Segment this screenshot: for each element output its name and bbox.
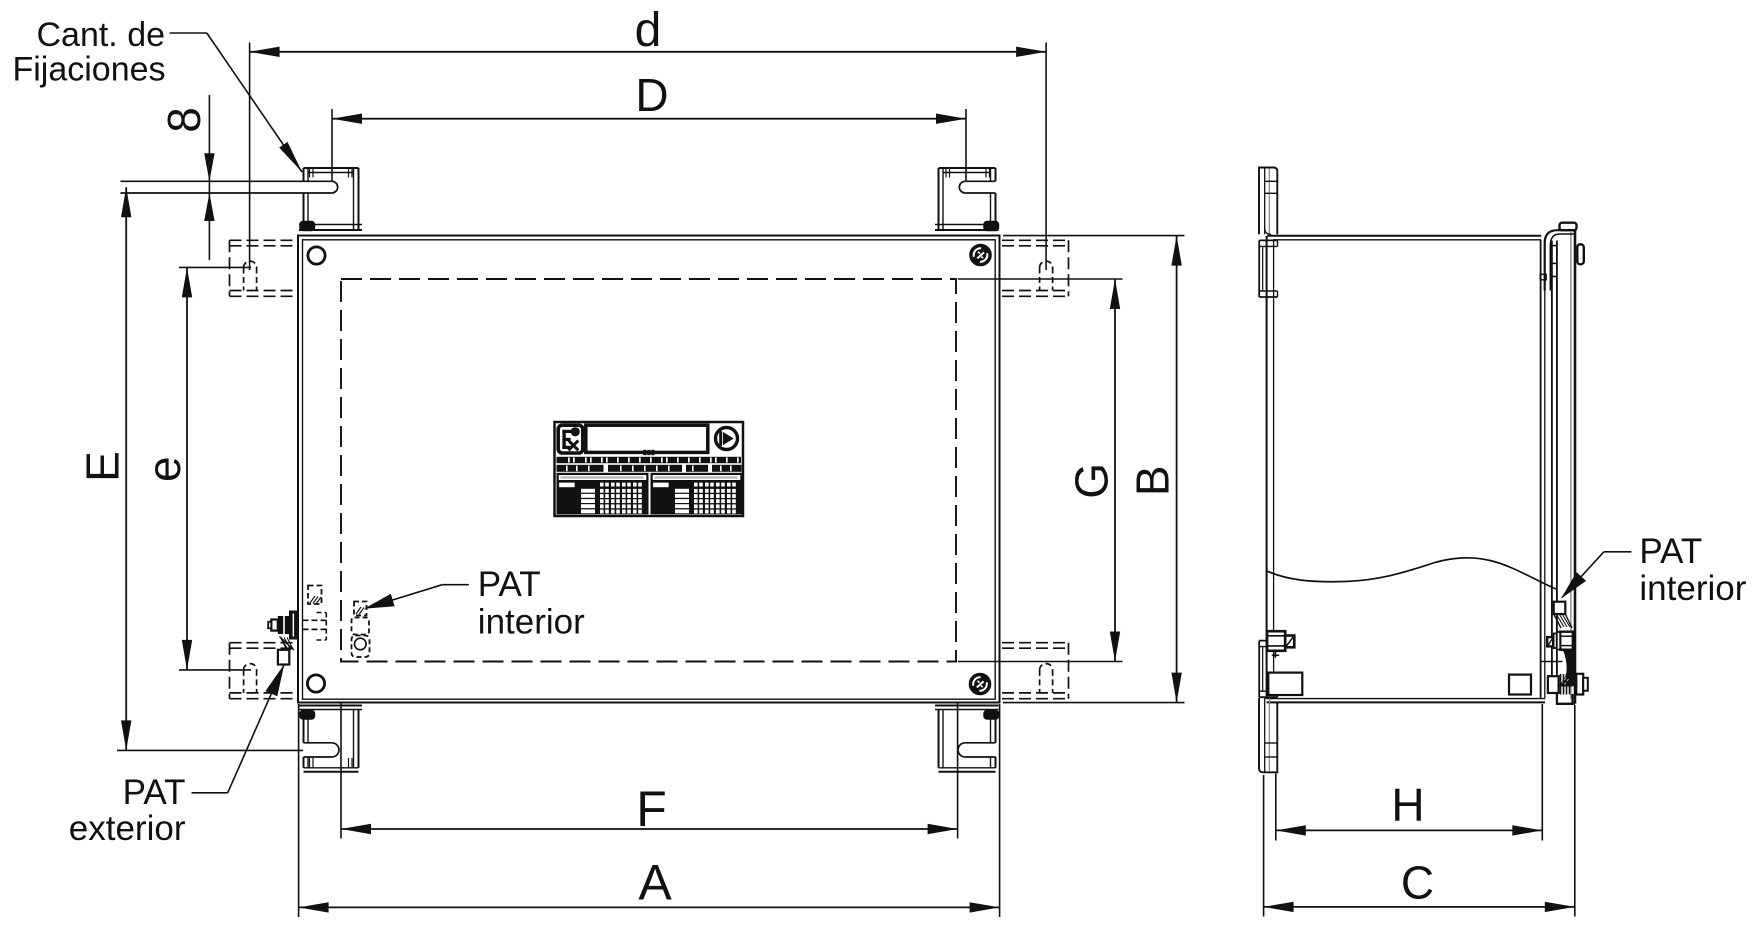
- svg-text:8: 8: [158, 107, 210, 133]
- svg-text:D: D: [635, 69, 668, 121]
- svg-text:E: E: [77, 451, 129, 482]
- svg-text:C: C: [1401, 857, 1434, 909]
- svg-text:B: B: [1126, 465, 1178, 496]
- svg-text:PAT: PAT: [478, 565, 541, 604]
- svg-text:Cant. de: Cant. de: [36, 16, 165, 54]
- svg-text:Fijaciones: Fijaciones: [12, 51, 165, 89]
- svg-text:interior: interior: [1639, 569, 1746, 608]
- svg-text:F: F: [636, 781, 667, 837]
- svg-text:exterior: exterior: [69, 809, 186, 848]
- svg-text:PAT: PAT: [1639, 532, 1702, 571]
- svg-text:PAT: PAT: [123, 773, 186, 812]
- svg-text:A: A: [638, 855, 672, 911]
- svg-text:G: G: [1066, 463, 1118, 499]
- svg-text:interior: interior: [478, 603, 585, 642]
- svg-text:H: H: [1391, 779, 1424, 831]
- svg-text:d: d: [635, 4, 662, 57]
- svg-text:e: e: [138, 456, 190, 482]
